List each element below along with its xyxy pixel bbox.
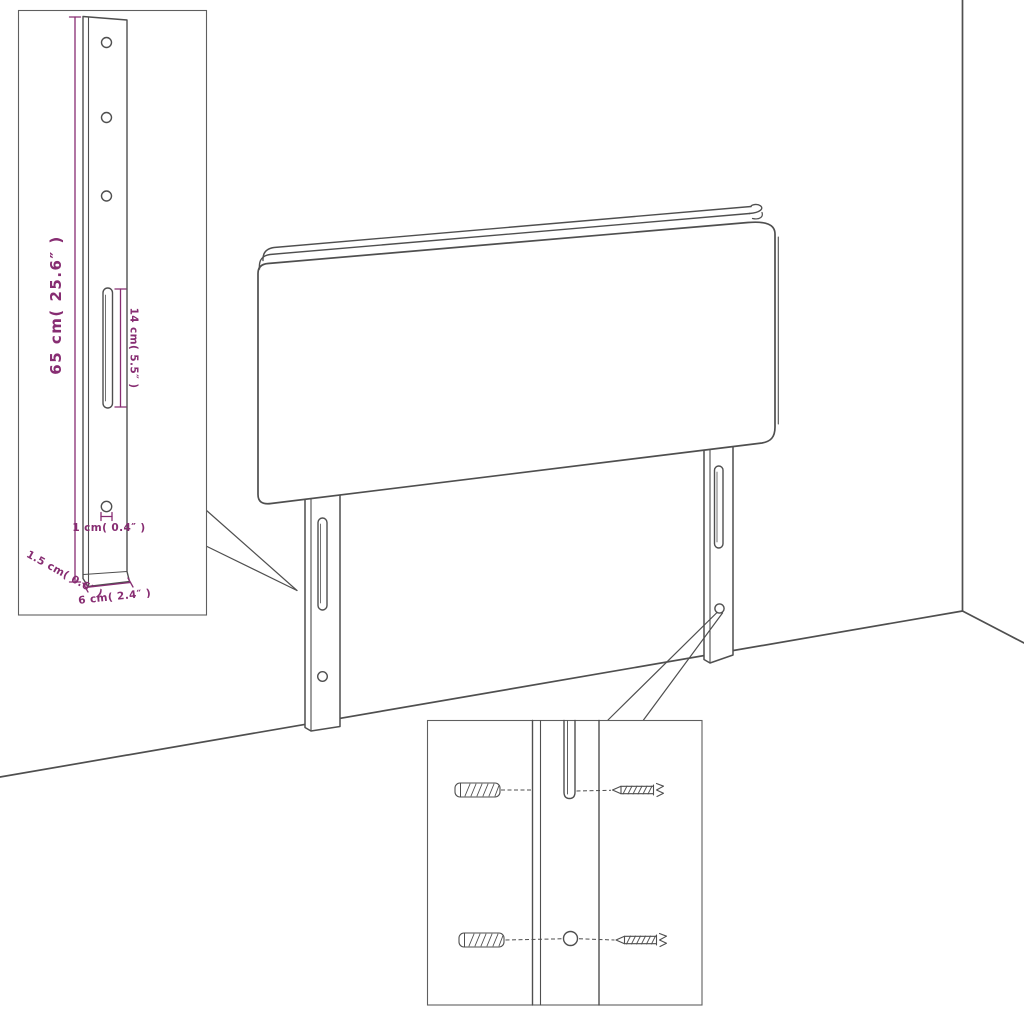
- floor-edge-right: [963, 611, 1024, 643]
- dimension-detail-box: 65 cm( 25.6″ ) 14 cm( 5.5″ ) 1 cm( 0.4″ …: [19, 11, 207, 616]
- product-dimension-diagram: 65 cm( 25.6″ ) 14 cm( 5.5″ ) 1 cm( 0.4″ …: [0, 0, 1024, 1024]
- left-leg-body: [305, 487, 340, 731]
- callout-line: [644, 613, 723, 720]
- callout-lines-left-box: [206, 510, 297, 591]
- detail-box-border: [428, 721, 703, 1006]
- hole-diameter-dimension-label: 1 cm( 0.4″ ): [72, 522, 145, 534]
- slot-length-dimension-label: 14 cm( 5.5″ ): [128, 308, 140, 389]
- callout-line: [206, 510, 297, 591]
- headboard-panel: [258, 204, 778, 503]
- headboard-right-leg: [704, 442, 733, 663]
- callout-line: [608, 613, 717, 720]
- diagram-svg: 65 cm( 25.6″ ) 14 cm( 5.5″ ) 1 cm( 0.4″ …: [0, 0, 1024, 1024]
- top-rail-curl: [750, 204, 762, 213]
- callout-line: [206, 546, 297, 591]
- mounting-detail-box: [428, 721, 703, 1006]
- panel-face: [258, 222, 775, 504]
- right-leg-body: [704, 442, 733, 663]
- headboard-left-leg: [305, 487, 340, 731]
- height-dimension-label: 65 cm( 25.6″ ): [47, 235, 65, 374]
